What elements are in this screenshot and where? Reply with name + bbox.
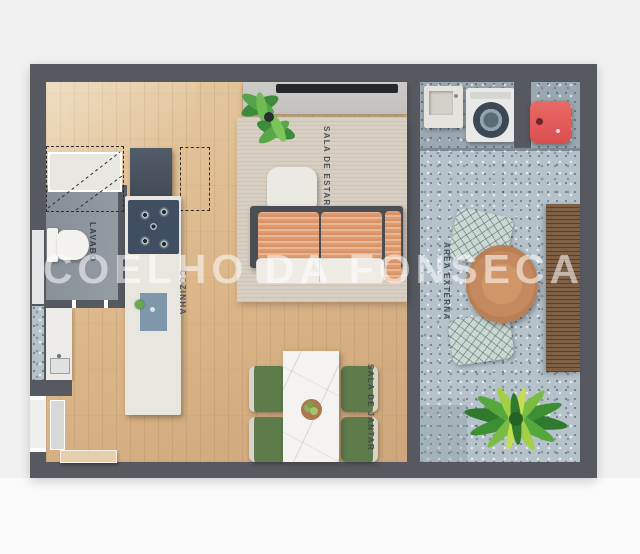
laundry-sink-basin xyxy=(429,91,453,115)
dining-chair xyxy=(249,366,286,412)
left-wall-recess-lower xyxy=(32,306,44,380)
washer-drum xyxy=(473,102,509,138)
refrigerator xyxy=(130,148,172,196)
washbasin-sink xyxy=(50,358,70,374)
floor-plan-image: LAVABO COZINHA SALA DE ESTAR SALA DE JAN… xyxy=(0,0,640,554)
gas-heater xyxy=(530,101,571,143)
heater-light xyxy=(556,129,560,133)
kitchen-faucet xyxy=(150,307,155,312)
herb-bowl xyxy=(135,300,144,309)
laundry-faucet xyxy=(454,94,458,98)
overhead-projection-area-2 xyxy=(180,147,210,211)
laundry-sink xyxy=(424,86,463,128)
background-band xyxy=(0,478,640,554)
projection-diagonal-lines xyxy=(46,146,124,212)
entry-door-jamb xyxy=(30,448,46,452)
entry-wall-stub xyxy=(30,380,72,396)
room-label-sala-de-jantar: SALA DE JANTAR xyxy=(366,364,375,462)
fruit xyxy=(307,401,314,408)
outdoor-plant-icon xyxy=(455,375,577,462)
watermark: COELHO DA FONSECA xyxy=(30,246,597,293)
burner-icon xyxy=(140,236,150,246)
entry-door-leaf xyxy=(60,450,117,463)
monstera-plant-icon xyxy=(236,84,302,152)
lavabo-door-jamb xyxy=(104,300,108,308)
fruit xyxy=(310,407,318,415)
entry-door-opening xyxy=(30,396,46,452)
entry-door-panel xyxy=(50,400,65,450)
washing-machine xyxy=(466,88,515,142)
lavabo-door-jamb xyxy=(72,300,76,308)
entry-door-jamb xyxy=(30,396,46,400)
dining-chair xyxy=(249,417,286,462)
burner-icon xyxy=(159,207,169,217)
burner-icon xyxy=(150,223,157,230)
fruit-bowl xyxy=(301,399,322,420)
burner-icon xyxy=(140,210,150,220)
laundry-divider-wall xyxy=(514,82,531,148)
kitchen-sink xyxy=(139,292,168,332)
heater-dial xyxy=(536,118,543,125)
washbasin-faucet xyxy=(57,354,61,358)
washer-panel xyxy=(470,92,511,99)
